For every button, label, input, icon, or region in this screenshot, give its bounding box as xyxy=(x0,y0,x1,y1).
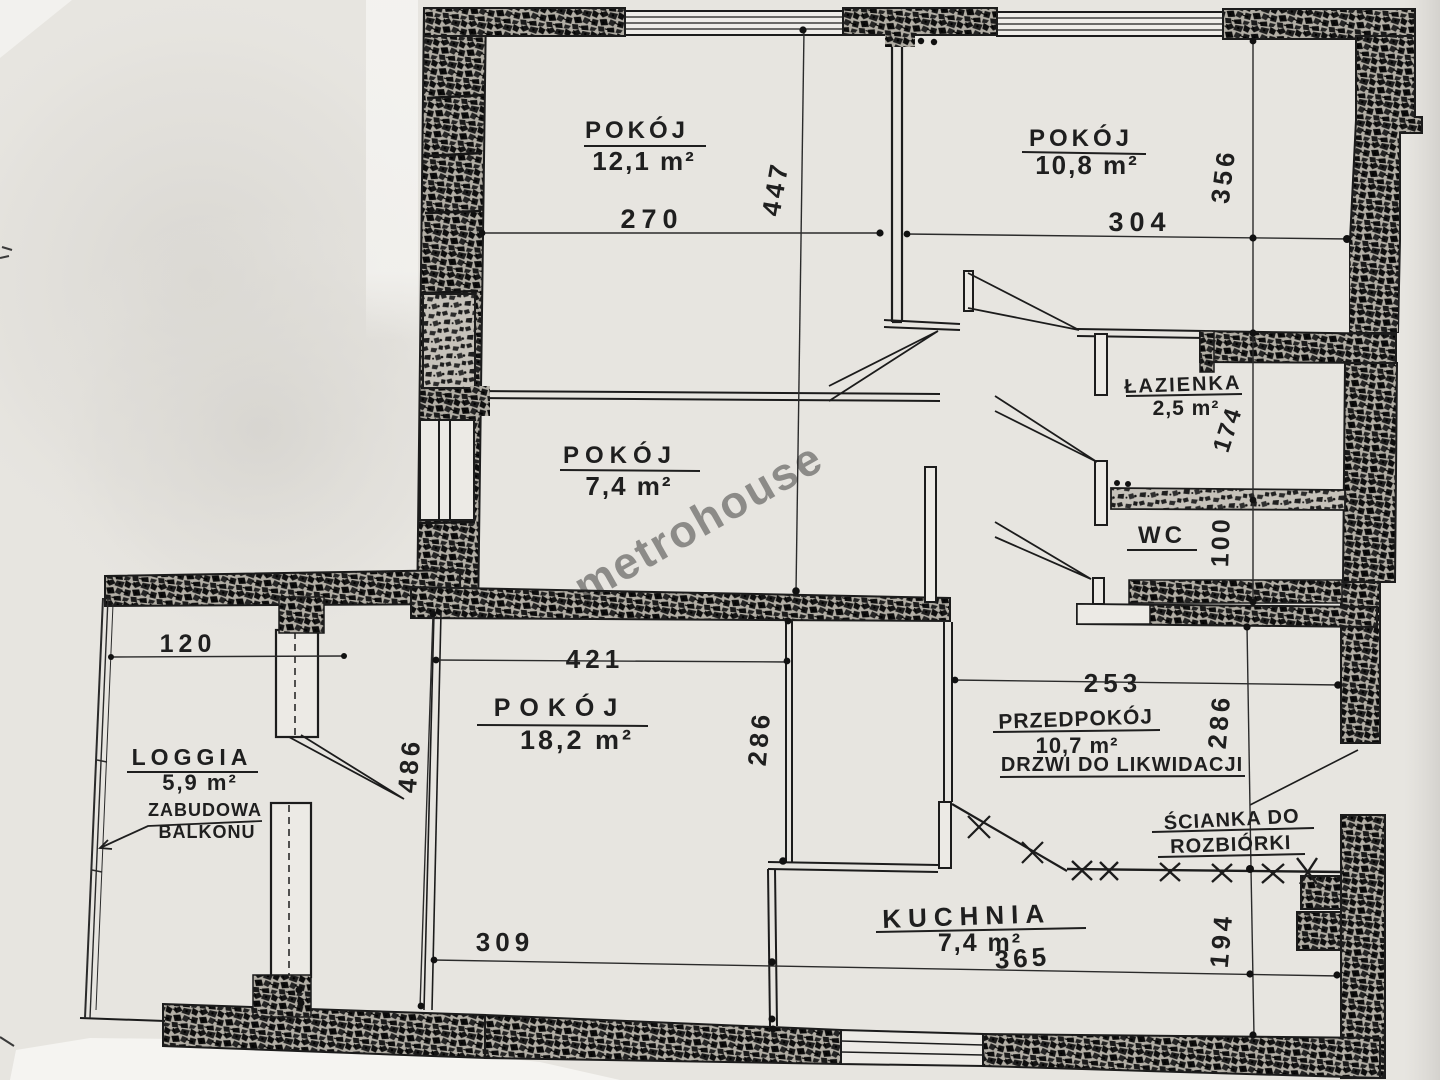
svg-text:10,8 m²: 10,8 m² xyxy=(1035,150,1139,180)
svg-text:486: 486 xyxy=(392,736,427,794)
svg-text:LOGGIA: LOGGIA xyxy=(132,744,253,770)
svg-text:100: 100 xyxy=(1206,516,1236,568)
svg-text:POKÓJ: POKÓJ xyxy=(563,441,677,469)
svg-text:POKÓJ: POKÓJ xyxy=(585,116,689,144)
svg-text:286: 286 xyxy=(1202,692,1237,750)
svg-text:120: 120 xyxy=(160,630,217,658)
svg-text:7,4 m²: 7,4 m² xyxy=(938,929,1022,957)
svg-text:POKÓJ: POKÓJ xyxy=(1029,124,1133,152)
svg-text:304: 304 xyxy=(1108,207,1171,237)
svg-text:ZABUDOWA: ZABUDOWA xyxy=(148,800,262,820)
svg-text:5,9 m²: 5,9 m² xyxy=(162,770,238,795)
svg-text:POKÓJ: POKÓJ xyxy=(494,692,627,722)
svg-text:12,1 m²: 12,1 m² xyxy=(592,146,696,176)
svg-text:309: 309 xyxy=(476,927,534,957)
svg-text:286: 286 xyxy=(742,709,777,767)
svg-text:WC: WC xyxy=(1138,522,1186,549)
svg-text:253: 253 xyxy=(1084,668,1142,698)
svg-text:421: 421 xyxy=(566,644,624,674)
svg-text:270: 270 xyxy=(620,204,683,234)
svg-text:2,5 m²: 2,5 m² xyxy=(1153,397,1220,420)
svg-text:194: 194 xyxy=(1204,911,1239,969)
svg-text:DRZWI DO LIKWIDACJI: DRZWI DO LIKWIDACJI xyxy=(1001,754,1243,776)
svg-text:7,4 m²: 7,4 m² xyxy=(585,471,672,501)
svg-text:18,2 m²: 18,2 m² xyxy=(520,725,634,755)
